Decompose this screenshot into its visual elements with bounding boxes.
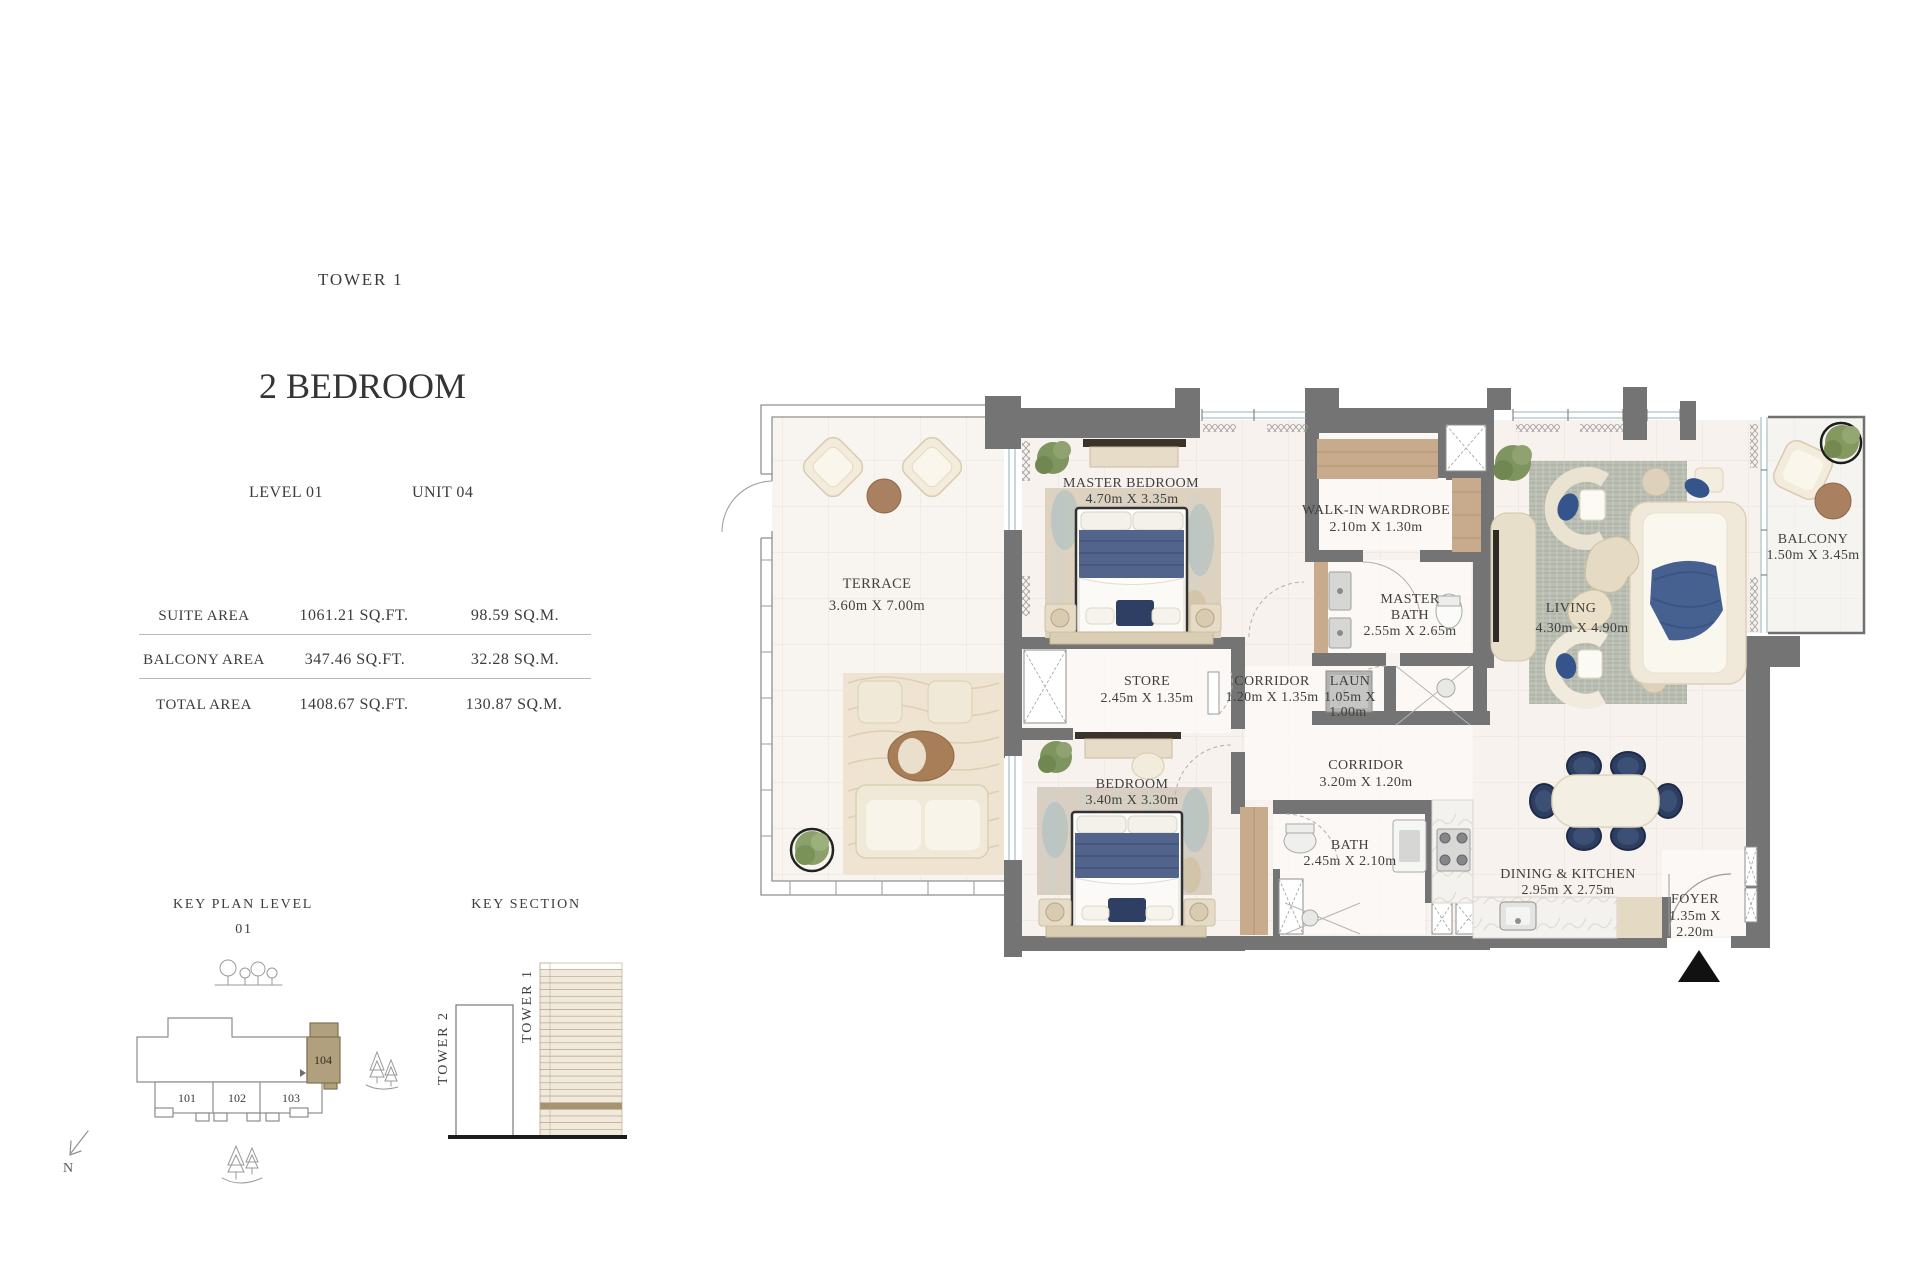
svg-text:TOWER 1: TOWER 1	[520, 969, 535, 1043]
svg-text:BEDROOM: BEDROOM	[1096, 777, 1169, 792]
svg-text:1.35m X: 1.35m X	[1669, 909, 1721, 924]
svg-text:TOWER 2: TOWER 2	[436, 1011, 451, 1085]
svg-text:FOYER: FOYER	[1671, 892, 1719, 907]
svg-text:102: 102	[228, 1091, 246, 1105]
svg-text:DINING & KITCHEN: DINING & KITCHEN	[1500, 867, 1636, 882]
svg-text:MASTER: MASTER	[1380, 592, 1439, 607]
svg-text:LAUN: LAUN	[1330, 674, 1370, 689]
svg-text:2.20m: 2.20m	[1676, 925, 1713, 940]
svg-text:2.95m X 2.75m: 2.95m X 2.75m	[1521, 883, 1614, 898]
svg-text:N: N	[63, 1161, 73, 1176]
svg-text:1.05m X: 1.05m X	[1324, 690, 1376, 705]
svg-text:2.10m X 1.30m: 2.10m X 1.30m	[1329, 520, 1422, 535]
svg-text:BATH: BATH	[1331, 838, 1369, 853]
svg-text:3.40m X 3.30m: 3.40m X 3.30m	[1085, 793, 1178, 808]
svg-text:MASTER BEDROOM: MASTER BEDROOM	[1063, 476, 1199, 491]
svg-text:CORRIDOR: CORRIDOR	[1328, 758, 1404, 773]
svg-text:1.20m X 1.35m: 1.20m X 1.35m	[1225, 690, 1318, 705]
svg-text:STORE: STORE	[1124, 674, 1170, 689]
svg-text:101: 101	[178, 1091, 196, 1105]
svg-text:3.20m X 1.20m: 3.20m X 1.20m	[1319, 775, 1412, 790]
svg-text:4.30m X 4.90m: 4.30m X 4.90m	[1535, 621, 1628, 636]
svg-text:2.45m X 2.10m: 2.45m X 2.10m	[1303, 854, 1396, 869]
svg-text:LIVING: LIVING	[1546, 601, 1597, 616]
svg-text:BALCONY: BALCONY	[1778, 532, 1848, 547]
svg-text:3.60m X 7.00m: 3.60m X 7.00m	[829, 598, 926, 614]
svg-text:104: 104	[314, 1053, 332, 1067]
svg-text:4.70m X 3.35m: 4.70m X 3.35m	[1085, 492, 1178, 507]
svg-text:2.55m X 2.65m: 2.55m X 2.65m	[1363, 624, 1456, 639]
svg-text:TERRACE: TERRACE	[843, 576, 912, 592]
svg-text:BATH: BATH	[1391, 608, 1429, 623]
svg-text:103: 103	[282, 1091, 300, 1105]
svg-text:CORRIDOR: CORRIDOR	[1234, 674, 1310, 689]
svg-text:WALK-IN WARDROBE: WALK-IN WARDROBE	[1302, 503, 1450, 518]
svg-text:1.00m: 1.00m	[1329, 705, 1366, 720]
svg-text:1.50m X 3.45m: 1.50m X 3.45m	[1766, 548, 1859, 563]
svg-text:2.45m X 1.35m: 2.45m X 1.35m	[1100, 691, 1193, 706]
